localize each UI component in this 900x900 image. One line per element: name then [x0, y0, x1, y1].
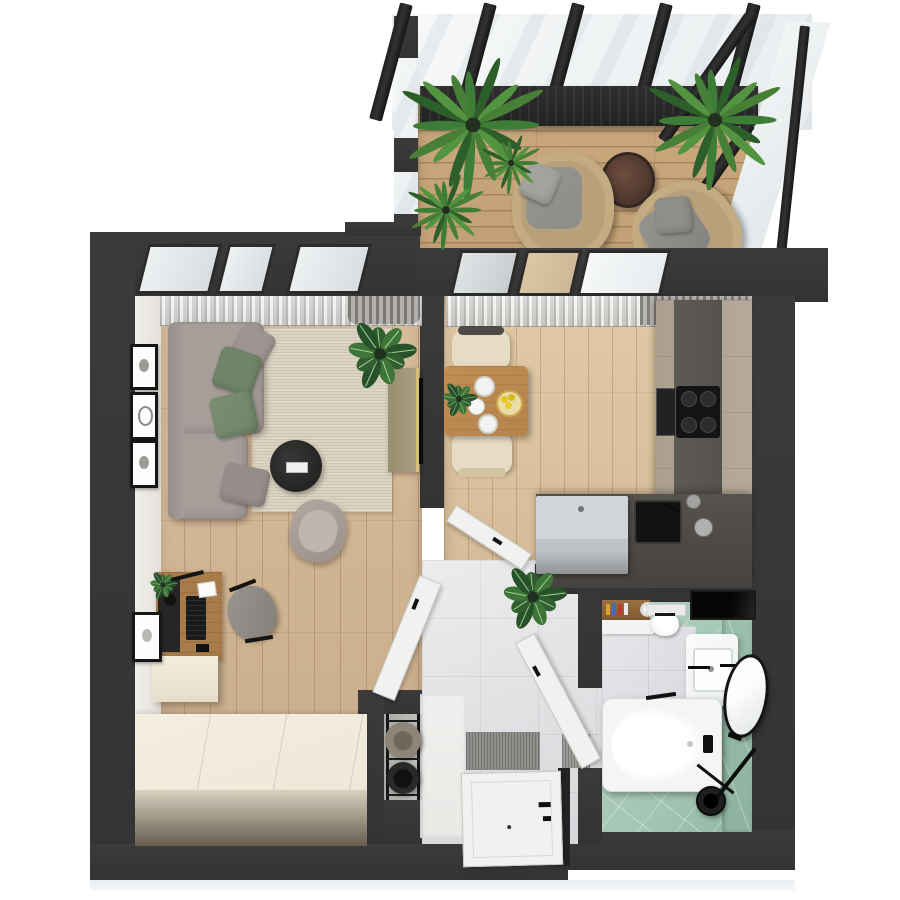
- art-dot: [139, 359, 149, 372]
- counter-jar: [694, 518, 713, 537]
- wardrobe-front: [135, 790, 367, 846]
- hat-olive: [385, 722, 421, 758]
- hat-rack-rung: [386, 794, 420, 796]
- steel-appliance: [536, 496, 628, 574]
- exterior-shadow-strip: [90, 880, 795, 891]
- shelf-bottle: [606, 604, 610, 615]
- desk-phone: [196, 644, 209, 652]
- top-wall-stub: [345, 222, 421, 236]
- bench-cabinet: [420, 694, 464, 838]
- burner: [700, 391, 716, 407]
- balcony-post: [394, 138, 418, 172]
- teapot: [468, 398, 485, 415]
- armchair-seat: [294, 506, 341, 556]
- art-dot: [142, 629, 152, 642]
- kitchen-window-pane: [516, 250, 583, 296]
- bathtub-faucet: [703, 735, 713, 753]
- kitchen-window-pane: [577, 250, 672, 296]
- desk-paper: [197, 581, 217, 598]
- coat-niche: [384, 714, 422, 800]
- niche-bottom-wall: [384, 800, 422, 844]
- floor-plan-stage: [0, 0, 900, 900]
- dining-chair-backrest: [458, 326, 504, 335]
- folded-canopy: [420, 86, 758, 126]
- dining-chair: [452, 330, 510, 370]
- desk-lamp: [164, 594, 176, 606]
- coffee-table: [270, 440, 322, 492]
- vanity-faucet: [688, 666, 710, 669]
- desk-lamp-arm: [170, 570, 204, 582]
- chair-pillow: [654, 196, 693, 235]
- wall-art-frame: [132, 612, 162, 662]
- counter-jar: [686, 494, 701, 509]
- hat-rack-rung: [386, 758, 420, 760]
- hat-black: [387, 762, 419, 794]
- sofa-pillow-green: [208, 390, 260, 440]
- plate: [474, 376, 495, 397]
- tv-screen: [419, 378, 423, 464]
- tv-remote: [286, 462, 308, 473]
- desk: [156, 572, 222, 660]
- floating-cabinet: [152, 656, 218, 702]
- gas-cooktop: [676, 386, 720, 438]
- wall-art-frame: [130, 392, 158, 440]
- dining-table: [444, 366, 528, 436]
- living-kitchen-partition: [420, 296, 444, 508]
- hat-rack-bar: [386, 714, 389, 800]
- burner: [681, 417, 697, 433]
- door-handle: [532, 665, 541, 677]
- toilet: [646, 604, 684, 636]
- black-wall-niche: [690, 590, 756, 620]
- wall-art-frame: [130, 440, 158, 488]
- hall-bath-wall-lower: [578, 768, 602, 844]
- living-window-pane: [136, 244, 222, 294]
- shelf-bottle: [624, 603, 628, 615]
- dining-chair-backrest: [458, 468, 506, 477]
- door-handle: [543, 816, 551, 821]
- built-in-oven: [656, 388, 676, 436]
- tv-console: [388, 368, 419, 472]
- shelf-bottle: [618, 604, 622, 615]
- area-rug: [252, 328, 392, 512]
- door-peephole: [507, 825, 511, 829]
- rattan-armchair: [512, 152, 614, 262]
- burner: [681, 391, 697, 407]
- lemon: [508, 394, 515, 401]
- burner: [700, 417, 716, 433]
- door-handle: [411, 598, 419, 610]
- bathtub-drain: [687, 741, 693, 747]
- right-wall: [752, 296, 795, 846]
- door-panel-line: [471, 780, 553, 858]
- bathtub: [602, 698, 722, 792]
- lemon-bowl: [496, 390, 523, 417]
- door-handle: [539, 802, 551, 807]
- wall-art-frame: [130, 344, 158, 390]
- appliance-handle-dot: [578, 506, 584, 512]
- door-handle: [492, 537, 503, 546]
- living-curtain-gray-section: [348, 296, 420, 324]
- wardrobe-top: [135, 714, 367, 790]
- art-ring: [138, 406, 153, 426]
- art-dot: [139, 456, 149, 469]
- left-wall: [90, 232, 135, 880]
- kitchen-window-pane: [450, 250, 521, 296]
- keyboard: [186, 596, 206, 640]
- bathroom-marble-area: [602, 626, 696, 706]
- doormat: [466, 732, 540, 770]
- shelf-bottle: [612, 603, 616, 615]
- toilet-hinge: [655, 613, 675, 616]
- sofa-backrest: [168, 322, 184, 520]
- entrance-door: [461, 771, 563, 868]
- plate: [478, 414, 498, 434]
- hat-rack-bar: [417, 714, 420, 800]
- lemon: [505, 402, 512, 409]
- living-window-pane: [286, 244, 372, 294]
